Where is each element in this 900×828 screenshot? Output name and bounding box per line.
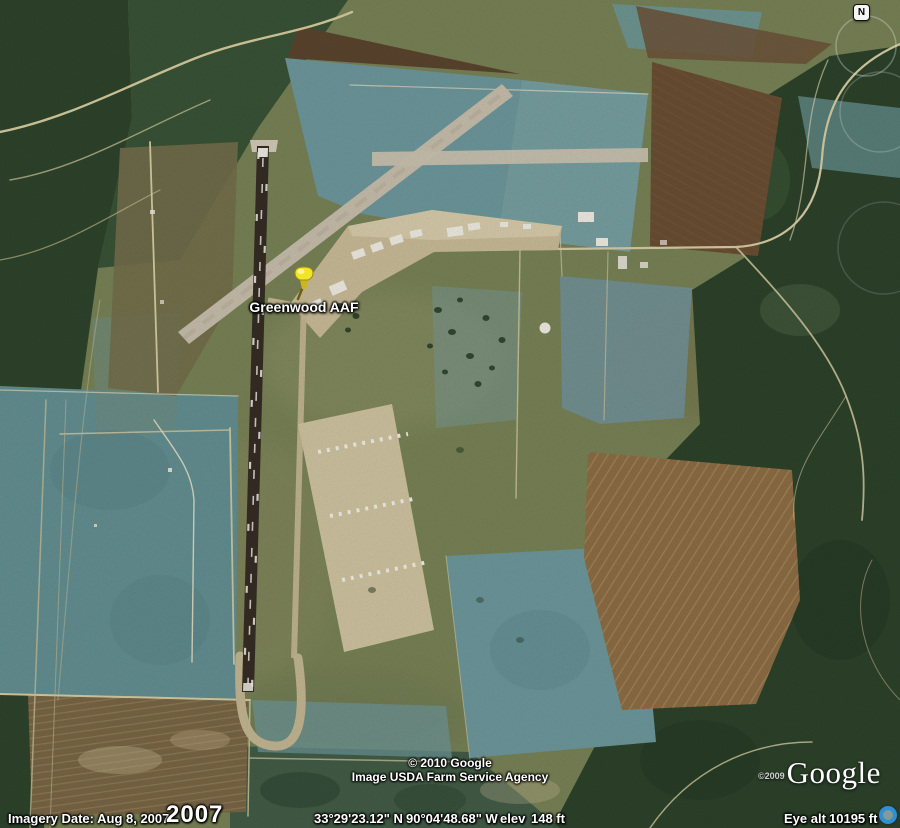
google-earth-viewport[interactable]: N Greenwood AAF © 2010 Google Image USDA…	[0, 0, 900, 828]
copyright-imagery-provider: Image USDA Farm Service Agency	[300, 770, 600, 784]
map-attribution: © 2010 Google Image USDA Farm Service Ag…	[300, 756, 600, 784]
google-logo: ©2009 Google	[758, 758, 881, 788]
streaming-indicator-icon	[879, 806, 897, 824]
timeline-year[interactable]: 2007	[166, 801, 223, 828]
copyright-google: © 2010 Google	[300, 756, 600, 770]
compass-north-icon[interactable]: N	[853, 4, 870, 21]
google-logo-text: Google	[787, 758, 881, 788]
logo-copyright-year: ©2009	[758, 771, 785, 781]
placemark-label[interactable]: Greenwood AAF	[238, 299, 370, 315]
satellite-imagery[interactable]	[0, 0, 900, 828]
placemark-pin-icon[interactable]	[291, 265, 317, 303]
grain-overlay	[0, 0, 900, 828]
compass-north-label: N	[858, 7, 865, 18]
